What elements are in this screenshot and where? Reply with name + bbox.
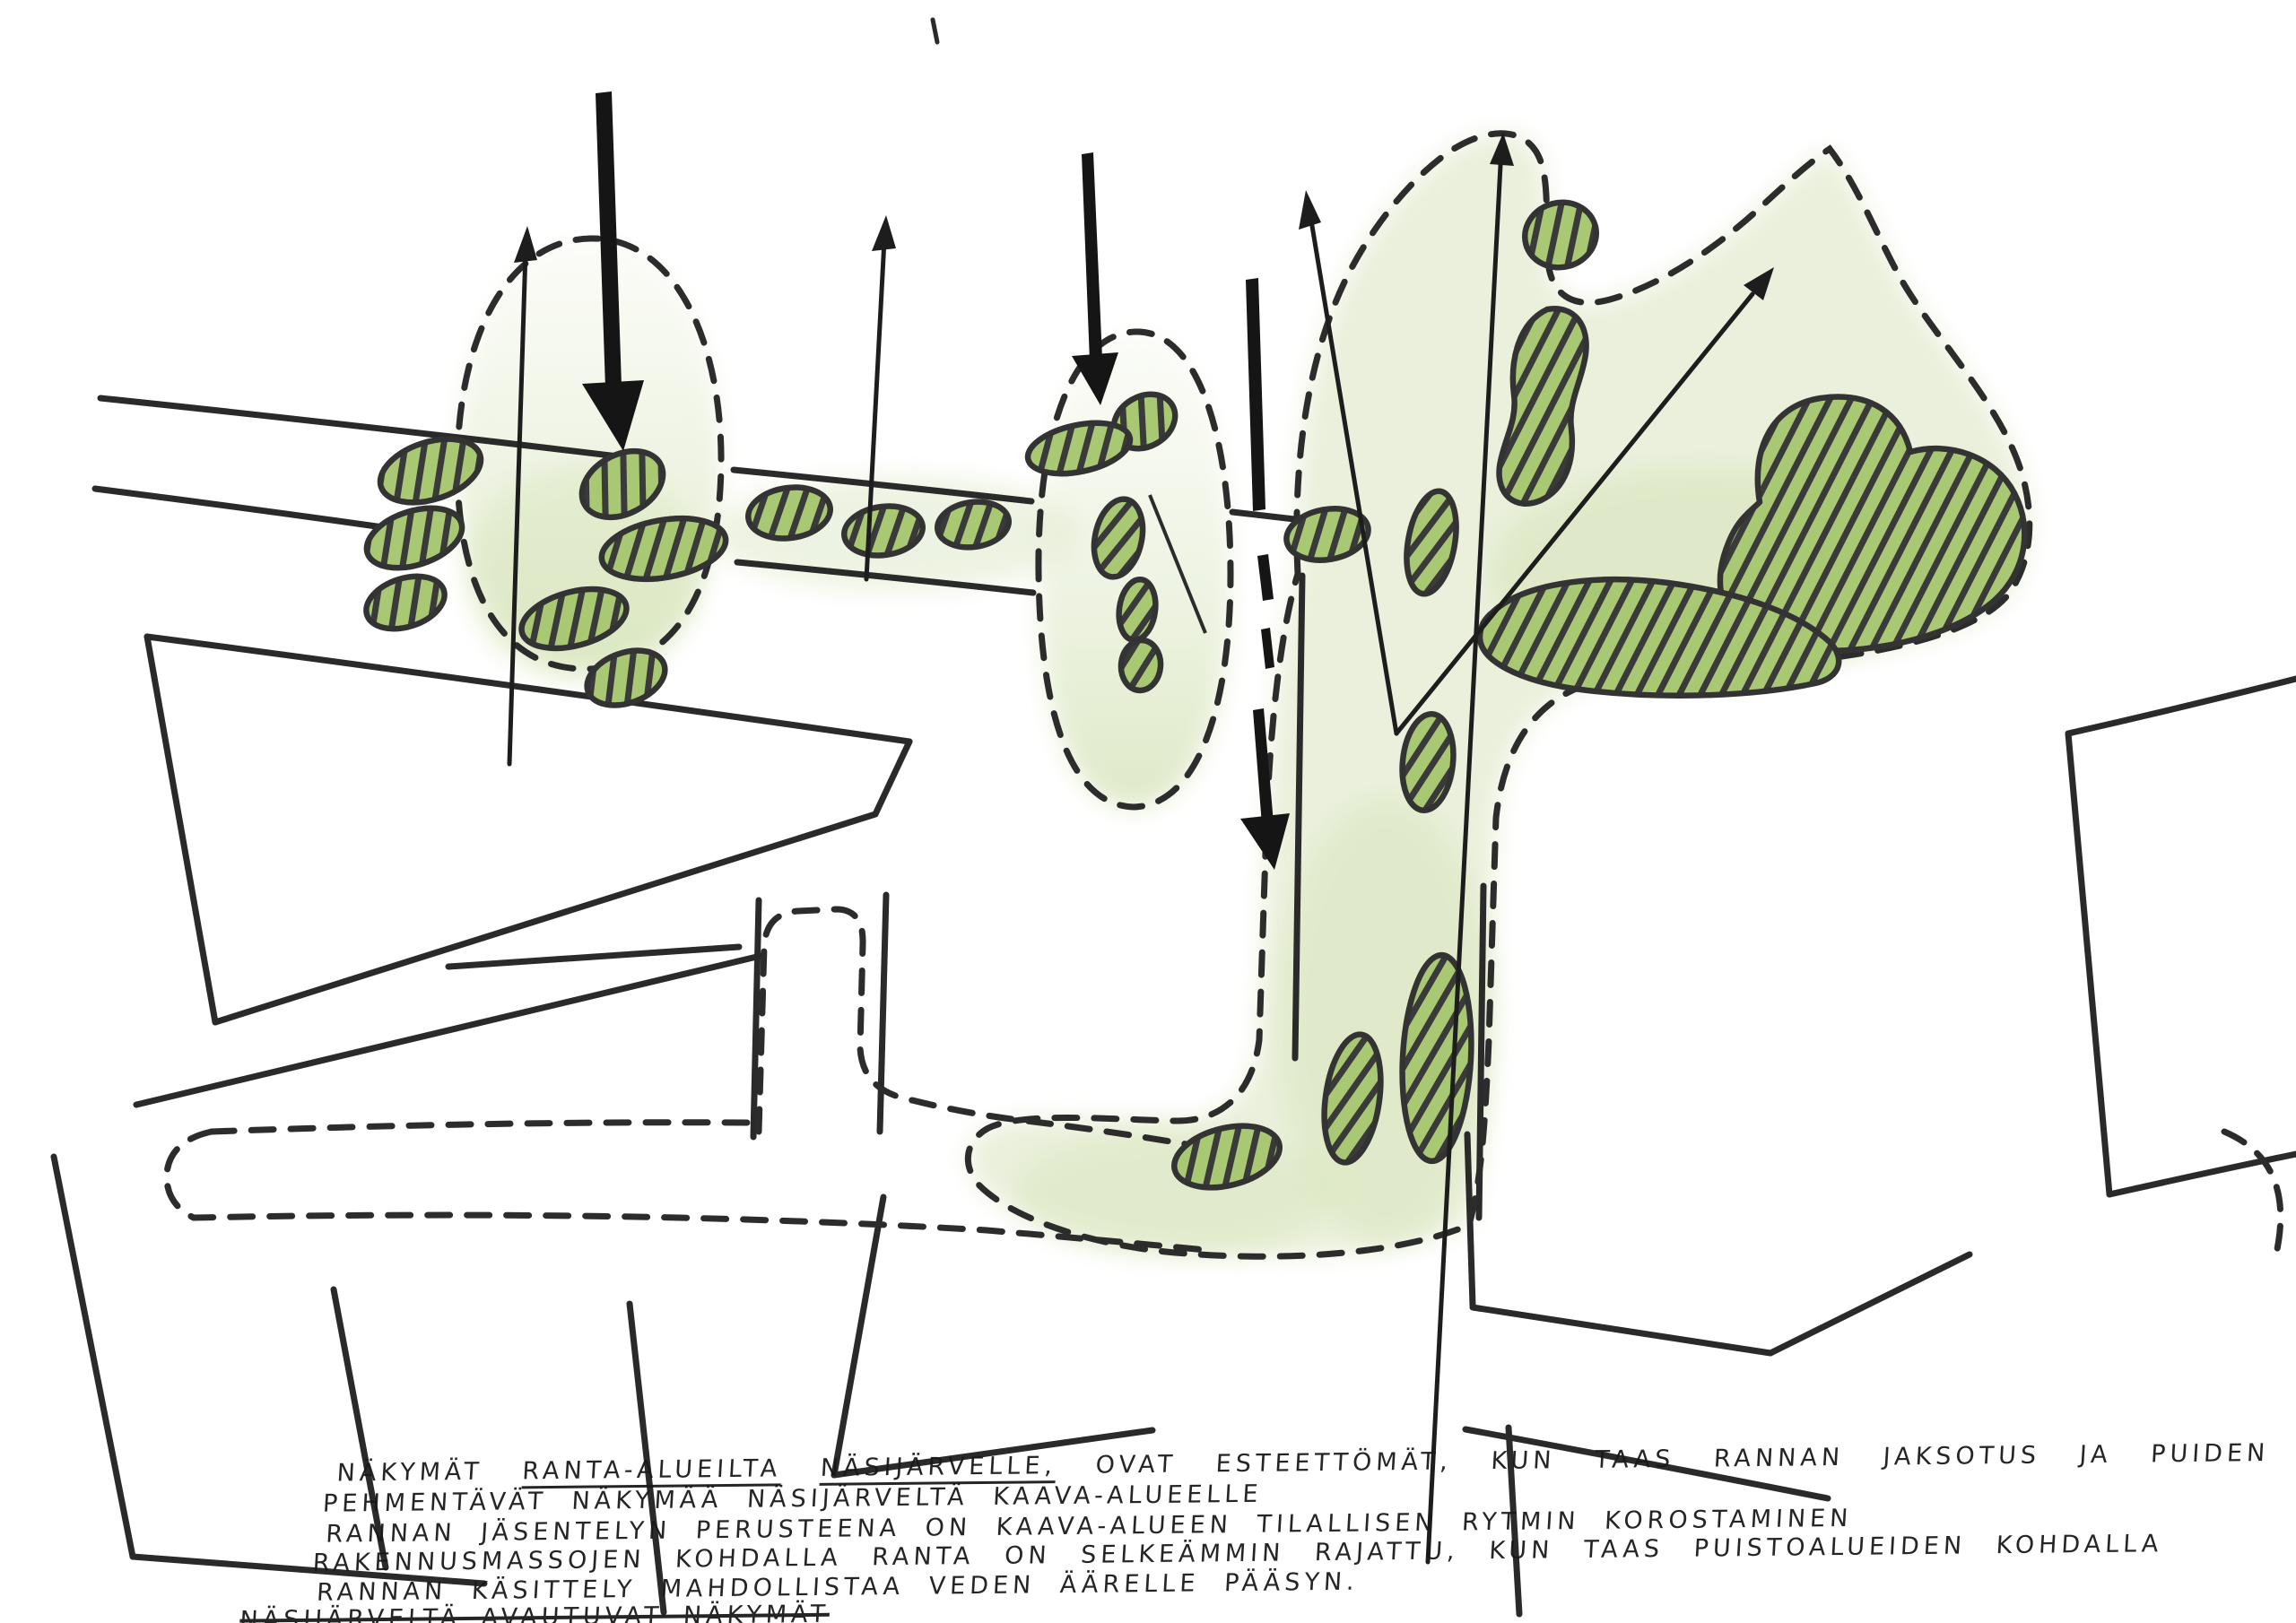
urban-waterfront-concept-sketch: NÄKYMÄT RANTA-ALUEILTA NÄSIJÄRVELLE, OVA… — [0, 0, 2296, 1623]
annotation-text: OVAT ESTEETTÖMÄT, KUN TAAS RANNAN JAKSOT… — [1095, 1436, 2296, 1479]
annotation-text: NÄKYMÄT — [336, 1458, 484, 1488]
annotation-text-underlined: NÄSIJÄRVELLE, — [820, 1452, 1057, 1486]
annotation-text-underlined: RANTA-ALUEILTA — [521, 1454, 782, 1488]
annotation-line: NÄKYMÄT RANTA-ALUEILTA NÄSIJÄRVELLE, OVA… — [336, 1436, 2296, 1487]
annotation-block: NÄKYMÄT RANTA-ALUEILTA NÄSIJÄRVELLE, OVA… — [0, 0, 2296, 1623]
